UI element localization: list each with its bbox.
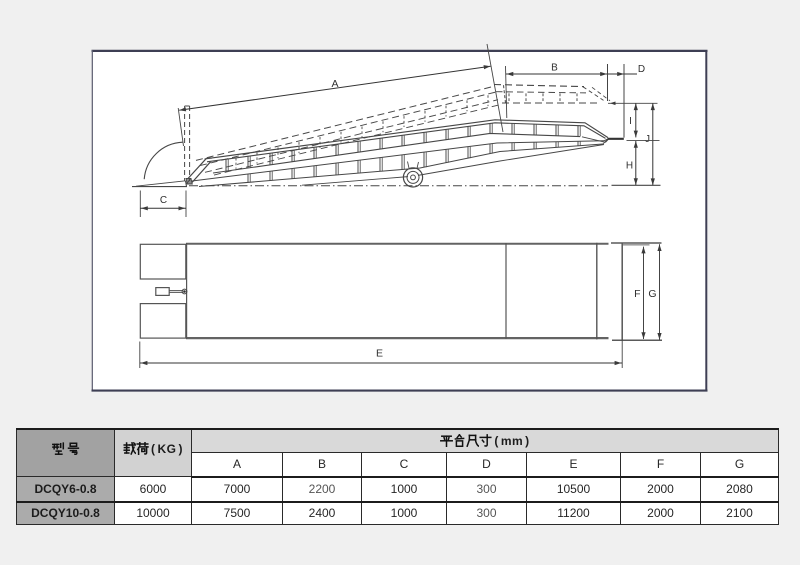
- svg-text:I: I: [629, 116, 632, 127]
- svg-text:C: C: [160, 195, 167, 206]
- svg-text:A: A: [331, 78, 338, 90]
- svg-text:G: G: [648, 288, 656, 300]
- svg-text:D: D: [638, 64, 645, 75]
- svg-text:J: J: [645, 134, 650, 145]
- svg-text:F: F: [634, 288, 640, 300]
- svg-text:B: B: [551, 63, 558, 74]
- svg-text:H: H: [626, 161, 633, 172]
- svg-text:E: E: [376, 348, 383, 360]
